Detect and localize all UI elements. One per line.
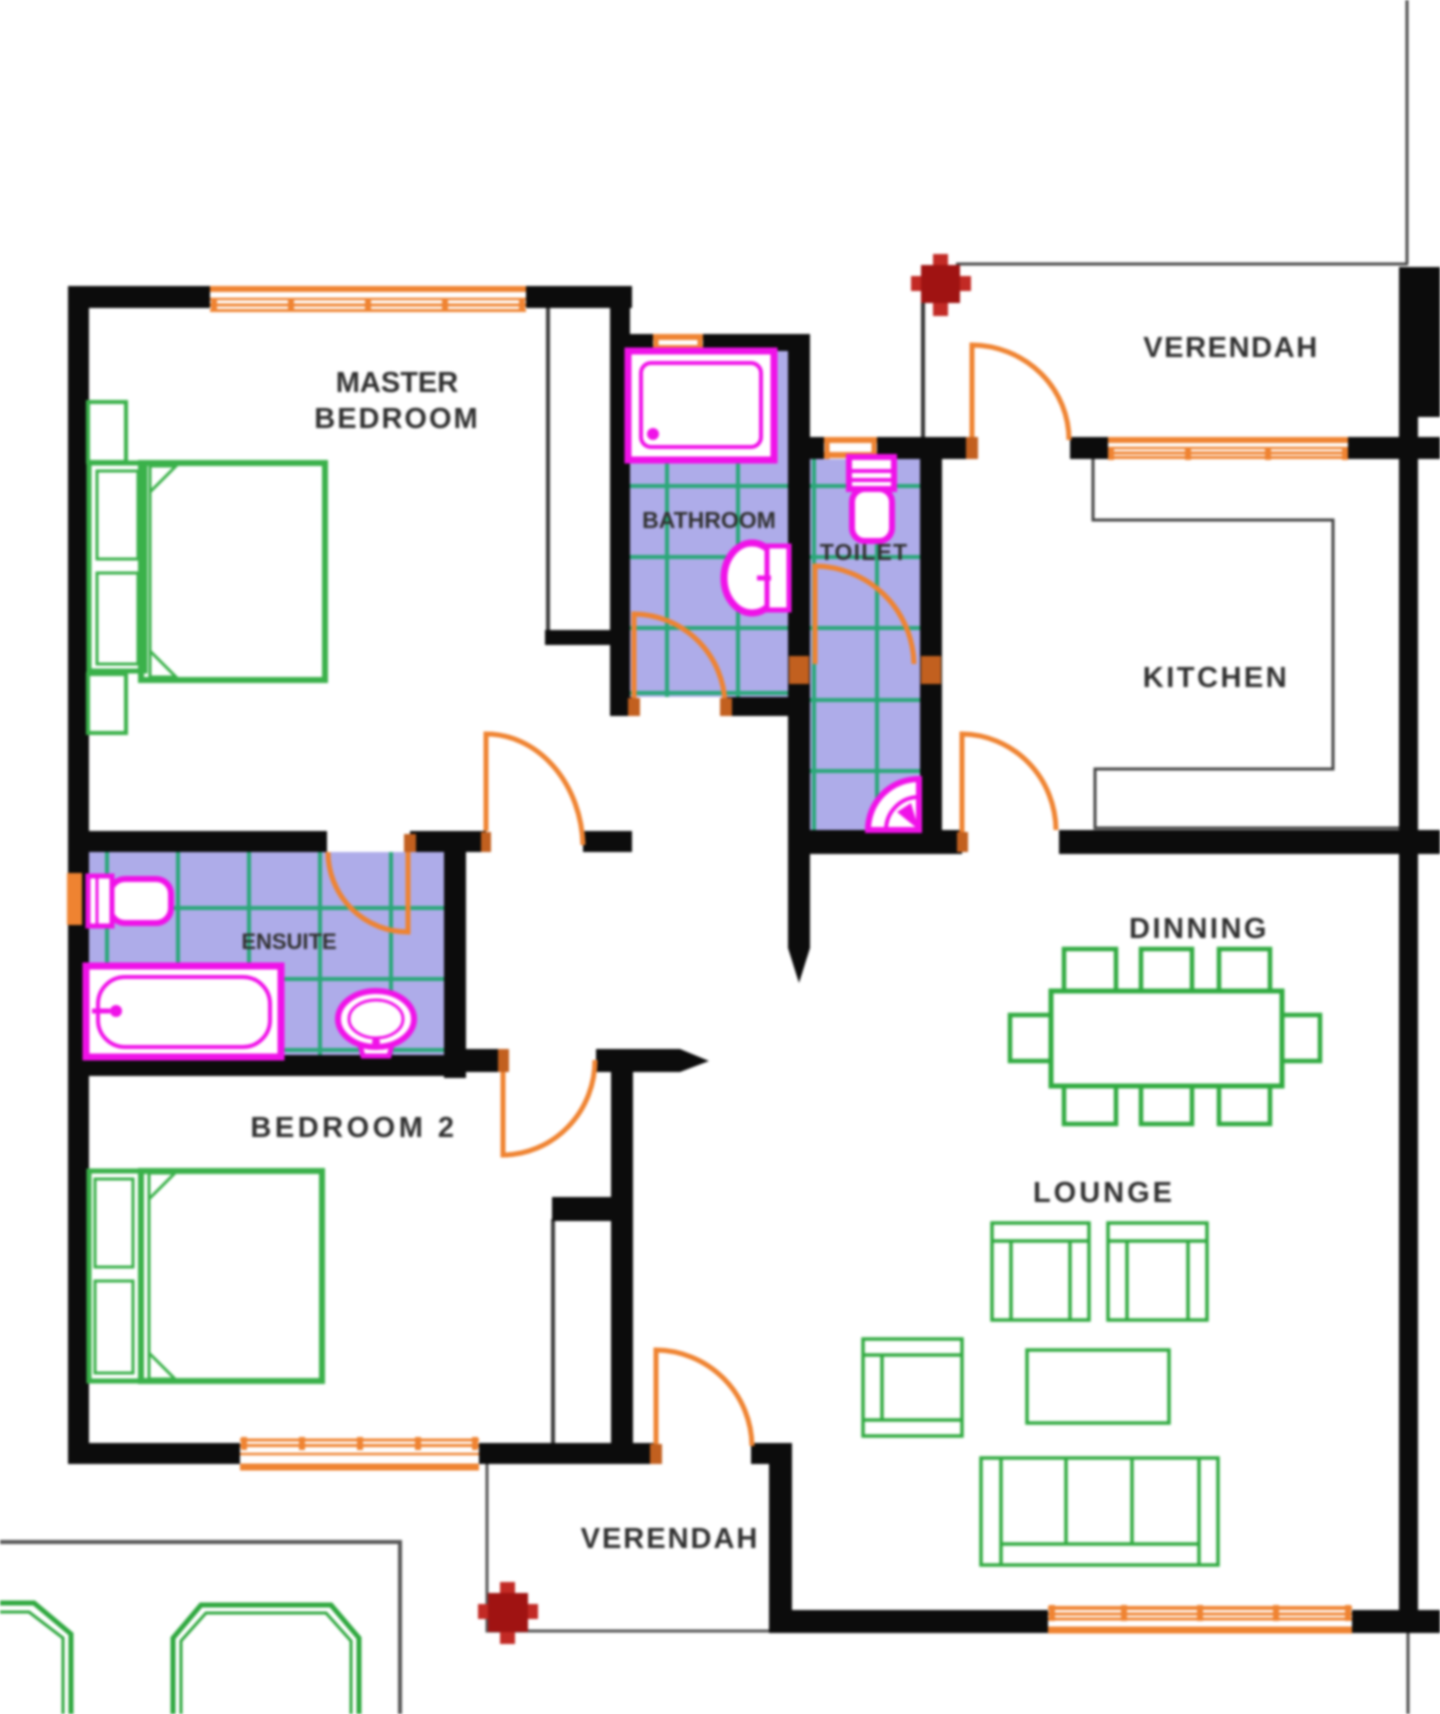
- svg-text:VERENDAH: VERENDAH: [1143, 332, 1319, 364]
- svg-text:TOILET: TOILET: [820, 539, 909, 565]
- svg-text:MASTER: MASTER: [336, 367, 459, 399]
- svg-text:VERENDAH: VERENDAH: [581, 1523, 760, 1555]
- svg-text:ENSUITE: ENSUITE: [241, 929, 336, 954]
- svg-text:DINNING: DINNING: [1129, 913, 1269, 945]
- svg-text:LOUNGE: LOUNGE: [1033, 1177, 1175, 1209]
- svg-text:BATHROOM: BATHROOM: [642, 507, 776, 533]
- svg-text:BEDROOM 2: BEDROOM 2: [250, 1112, 457, 1144]
- svg-text:KITCHEN: KITCHEN: [1143, 662, 1289, 694]
- svg-text:BEDROOM: BEDROOM: [314, 403, 479, 435]
